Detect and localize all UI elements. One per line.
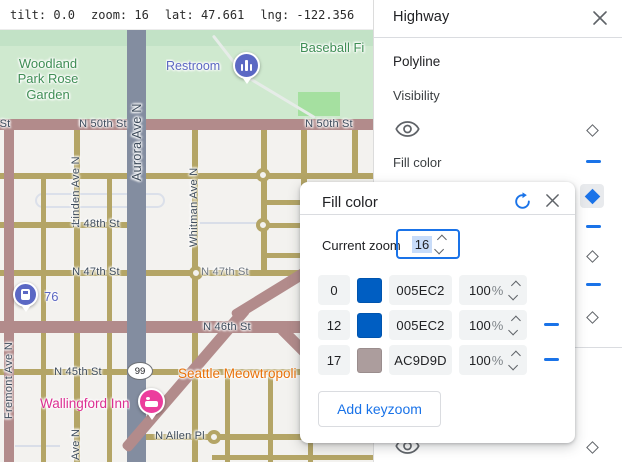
lng-readout: lng: -122.356: [260, 8, 354, 22]
stepper-arrows[interactable]: [511, 282, 518, 299]
highway-99-shield: 99: [127, 362, 153, 380]
percent-sign: %: [492, 318, 504, 333]
keyzoom-level-field[interactable]: 12: [318, 310, 350, 340]
chevron-up-icon: [511, 280, 521, 290]
lat-readout: lat: 47.661: [165, 8, 244, 22]
keyzoom-row-0: 0 005EC2 100%: [300, 275, 575, 305]
visibility-toggle[interactable]: [395, 120, 420, 138]
road-minor: [225, 375, 230, 462]
zoom-readout: zoom: 16: [91, 8, 149, 22]
eye-icon: [395, 120, 420, 138]
street-label-n47th-west: N 47th St: [63, 266, 129, 278]
roundabout: [256, 218, 270, 232]
dialog-divider: [300, 214, 575, 215]
stepper-arrows[interactable]: [511, 352, 518, 369]
style-editor-app: tilt: 0.0 zoom: 16 lat: 47.661 lng: -122…: [0, 0, 622, 462]
chevron-down-icon: [434, 244, 444, 254]
keyzoom-level-field[interactable]: 17: [318, 345, 350, 375]
fill-color-dialog: Fill color Current zoom 16 0 005EC2 100%: [300, 182, 575, 443]
stepper-arrows[interactable]: [437, 236, 444, 253]
street-label-ave-n-fragment: Ave N: [70, 422, 82, 462]
poi-label-restroom: Restroom: [166, 59, 230, 73]
visibility-keyframe-diamond[interactable]: [586, 124, 599, 137]
road-minor: [268, 375, 273, 462]
road-minor: [41, 175, 46, 462]
gas-station-poi-pin[interactable]: [13, 282, 38, 307]
tilt-readout: tilt: 0.0: [10, 8, 75, 22]
selected-keyframe-diamond-icon: [584, 188, 600, 204]
poi-label-baseball-field: Baseball Fi: [300, 40, 372, 55]
dialog-close-button[interactable]: [545, 193, 560, 208]
current-zoom-stepper[interactable]: 16: [396, 229, 460, 259]
fill-color-keyframe-dash[interactable]: [586, 160, 601, 163]
close-icon: [545, 193, 560, 208]
bed-icon: [145, 401, 158, 407]
fuel-pump-icon: [21, 289, 30, 300]
opacity-field[interactable]: 100%: [459, 310, 527, 340]
keyframe-diamond[interactable]: [586, 311, 599, 324]
poi-label-rose-garden: Woodland Park Rose Garden: [8, 56, 88, 102]
remove-keyzoom-button[interactable]: [544, 323, 559, 326]
keyzoom-row-17: 17 AC9D9D 100%: [300, 345, 575, 375]
restroom-icon: [241, 60, 253, 71]
chevron-up-icon: [437, 234, 447, 244]
color-swatch[interactable]: [357, 313, 382, 338]
color-swatch[interactable]: [357, 278, 382, 303]
current-zoom-value: 16: [412, 236, 432, 253]
percent-sign: %: [492, 353, 504, 368]
opacity-value: 100: [469, 353, 491, 368]
street-label-whitman: Whitman Ave N: [188, 150, 200, 265]
dialog-title: Fill color: [322, 194, 378, 211]
keyframe-dash[interactable]: [586, 225, 601, 228]
footpath: [200, 222, 258, 224]
current-zoom-label: Current zoom: [322, 238, 401, 253]
road-minor: [261, 130, 267, 276]
wallingford-inn-poi-pin[interactable]: [138, 388, 165, 415]
roundabout: [256, 168, 270, 182]
panel-divider: [374, 37, 622, 38]
poi-label-seattle-meowtropolitan: Seattle Meowtropoli: [178, 366, 304, 381]
chevron-down-icon: [508, 290, 518, 300]
opacity-value: 100: [469, 283, 491, 298]
panel-close-button[interactable]: [592, 10, 608, 26]
hex-color-field[interactable]: AC9D9D: [389, 345, 452, 375]
polyline-section-label: Polyline: [393, 54, 440, 69]
visibility-label: Visibility: [393, 88, 440, 103]
hex-color-field[interactable]: 005EC2: [389, 275, 452, 305]
street-label-aurora: Aurora Ave N: [130, 45, 144, 240]
restroom-poi-pin[interactable]: [233, 52, 260, 79]
chevron-down-icon: [508, 360, 518, 370]
fill-color-label: Fill color: [393, 155, 441, 170]
selected-keyframe-chip[interactable]: [580, 184, 604, 208]
percent-sign: %: [492, 283, 504, 298]
opacity-field[interactable]: 100%: [459, 345, 527, 375]
highway-99-number: 99: [135, 366, 146, 377]
keyzoom-level-field[interactable]: 0: [318, 275, 350, 305]
street-label-n47th-east: N 47th St: [192, 266, 258, 278]
footpath: [15, 445, 60, 447]
opacity-value: 100: [469, 318, 491, 333]
street-label-n50th-west: N 50th St: [70, 118, 136, 130]
keyframe-diamond[interactable]: [586, 441, 599, 454]
road-minor: [352, 130, 358, 173]
add-keyzoom-button[interactable]: Add keyzoom: [318, 391, 441, 427]
poi-label-wallingford-inn: Wallingford Inn: [40, 396, 130, 411]
reset-icon: [513, 192, 532, 211]
hex-color-field[interactable]: 005EC2: [389, 310, 452, 340]
street-label-linden: Linden Ave N: [70, 135, 82, 247]
street-label-n50th-east: N 50th St: [296, 118, 362, 130]
close-icon: [592, 10, 608, 26]
street-label-fremont: Fremont Ave N: [3, 333, 15, 428]
color-swatch[interactable]: [357, 348, 382, 373]
chevron-up-icon: [511, 350, 521, 360]
reset-button[interactable]: [513, 192, 532, 211]
poi-label-76-station: 76: [44, 289, 58, 304]
keyframe-diamond[interactable]: [586, 250, 599, 263]
opacity-field[interactable]: 100%: [459, 275, 527, 305]
map-status-bar: tilt: 0.0 zoom: 16 lat: 47.661 lng: -122…: [0, 0, 373, 30]
panel-title: Highway: [393, 9, 449, 25]
keyframe-dash[interactable]: [586, 283, 601, 286]
chevron-down-icon: [508, 325, 518, 335]
street-label-n46th: N 46th St: [194, 321, 260, 333]
chevron-up-icon: [511, 315, 521, 325]
street-label-st-fragment: St: [0, 118, 17, 130]
keyzoom-row-12: 12 005EC2 100%: [300, 310, 575, 340]
street-label-n45th: N 45th St: [45, 366, 111, 378]
stepper-arrows[interactable]: [511, 317, 518, 334]
street-label-n-allen-pl: N Allen Pl: [145, 430, 215, 442]
road-minor: [212, 455, 373, 460]
remove-keyzoom-button[interactable]: [544, 358, 559, 361]
